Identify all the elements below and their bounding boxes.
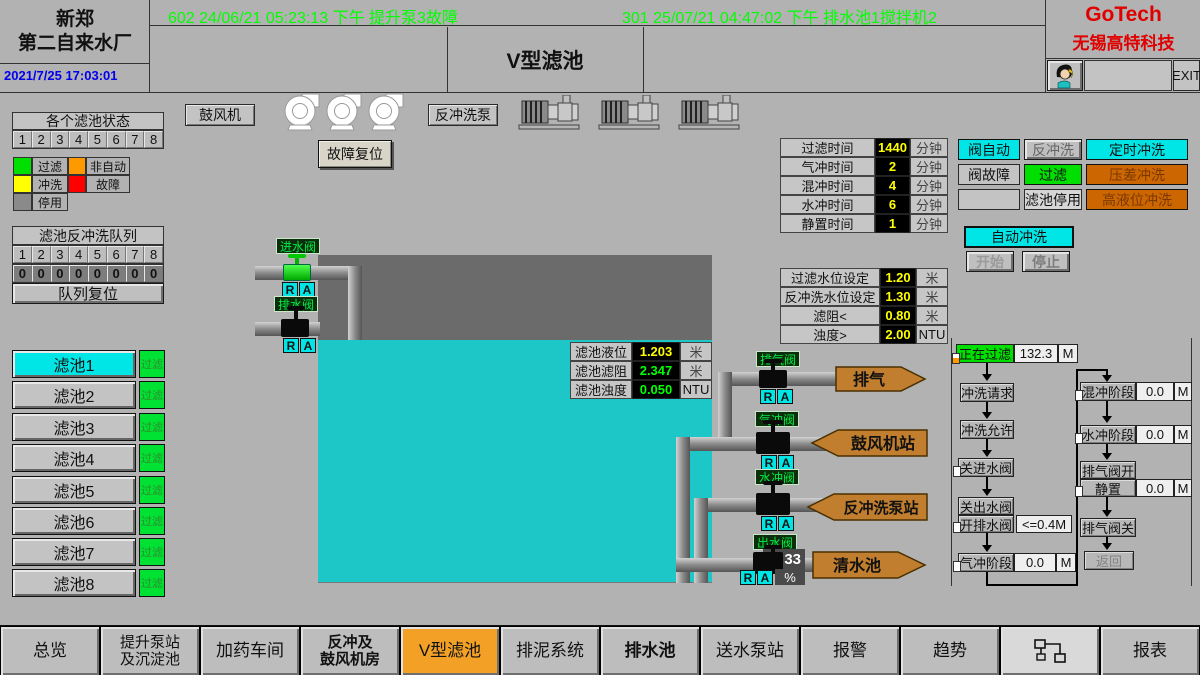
queue-cell-2: 2 bbox=[32, 246, 51, 263]
setting-unit: 米 bbox=[916, 268, 948, 287]
nav-alarm[interactable]: 报警 bbox=[800, 626, 900, 675]
filter-button-6[interactable]: 滤池6 bbox=[12, 507, 136, 535]
setting-value[interactable]: 2.00 bbox=[880, 325, 916, 344]
svg-text:反冲洗泵站: 反冲洗泵站 bbox=[843, 499, 918, 517]
pump-icon bbox=[678, 95, 740, 131]
nav-supply-pump-station[interactable]: 送水泵站 bbox=[700, 626, 800, 675]
flow-mix-stage: 混冲阶段 bbox=[1080, 382, 1136, 401]
legend-swatch-disabled bbox=[13, 193, 32, 211]
flow-air-stage-unit: M bbox=[1056, 553, 1076, 572]
flow-mix-stage-unit: M bbox=[1174, 382, 1192, 401]
filter-status-1: 过滤 bbox=[139, 350, 165, 378]
queue-value-4: 0 bbox=[69, 265, 88, 282]
tank-turbidity-value: 0.050 bbox=[632, 380, 680, 399]
flow-rest-value: 0.0 bbox=[1136, 479, 1174, 497]
flow-panel-border bbox=[1191, 338, 1192, 586]
timer-label: 气冲时间 bbox=[780, 157, 875, 176]
nav-drain-pool[interactable]: 排水池 bbox=[600, 626, 700, 675]
filter-button-3[interactable]: 滤池3 bbox=[12, 413, 136, 441]
tank-level-unit: 米 bbox=[680, 342, 712, 361]
svg-text:鼓风机站: 鼓风机站 bbox=[851, 434, 915, 453]
flow-open-drain: 开排水阀 bbox=[958, 515, 1014, 533]
filter-tank-top bbox=[318, 255, 712, 340]
tank-level-value: 1.203 bbox=[632, 342, 680, 361]
mode-high-level-wash[interactable]: 高液位冲洗 bbox=[1086, 189, 1188, 210]
backwash-pump-button[interactable]: 反冲洗泵 bbox=[428, 104, 498, 126]
nav-overview[interactable]: 总览 bbox=[0, 626, 100, 675]
filter-status-cells: 1 2 3 4 5 6 7 8 bbox=[12, 130, 164, 149]
drain-valve-remote[interactable]: R bbox=[283, 338, 299, 353]
setting-unit: 米 bbox=[916, 306, 948, 325]
status-cell-4[interactable]: 4 bbox=[69, 131, 88, 148]
timer-unit: 分钟 bbox=[910, 214, 948, 233]
flow-air-stage-value: 0.0 bbox=[1014, 553, 1056, 572]
queue-cell-3: 3 bbox=[51, 246, 70, 263]
setting-value[interactable]: 1.20 bbox=[880, 268, 916, 287]
outlet-valve-remote[interactable]: R bbox=[740, 570, 756, 585]
alarm-message-1: 602 24/06/21 05:23:13 下午 提升泵3故障 bbox=[168, 4, 458, 26]
status-cell-3[interactable]: 3 bbox=[51, 131, 70, 148]
timer-unit: 分钟 bbox=[910, 195, 948, 214]
outlet-valve-opening-unit: % bbox=[775, 569, 805, 585]
header-bottom-line bbox=[0, 92, 1200, 93]
nav-dosing-workshop[interactable]: 加药车间 bbox=[200, 626, 300, 675]
fault-reset-button[interactable]: 故障复位 bbox=[318, 140, 392, 168]
timer-label: 水冲时间 bbox=[780, 195, 875, 214]
setting-label: 反冲洗水位设定 bbox=[780, 287, 880, 306]
status-cell-8[interactable]: 8 bbox=[144, 131, 163, 148]
setting-label: 过滤水位设定 bbox=[780, 268, 880, 287]
mode-filtering: 过滤 bbox=[1024, 164, 1082, 185]
filter-status-5: 过滤 bbox=[139, 476, 165, 504]
blower-icon bbox=[325, 93, 363, 131]
flow-water-stage-unit: M bbox=[1174, 425, 1192, 444]
flow-rest: 静置 bbox=[1080, 479, 1136, 497]
divider bbox=[643, 27, 644, 92]
plant-name-line1: 新郑 bbox=[56, 8, 94, 32]
user-icon bbox=[1054, 63, 1076, 89]
plant-name: 新郑 第二自来水厂 bbox=[0, 2, 150, 62]
legend-swatch-manual bbox=[68, 157, 86, 175]
flow-close-outlet: 关出水阀 bbox=[958, 497, 1014, 515]
mode-diff-pressure-wash[interactable]: 压差冲洗 bbox=[1086, 164, 1188, 185]
auto-wash-stop-button[interactable]: 停止 bbox=[1022, 251, 1070, 272]
flow-exhaust-close: 排气阀关 bbox=[1080, 518, 1136, 537]
setting-value[interactable]: 1.30 bbox=[880, 287, 916, 306]
flow-rest-indicator bbox=[1075, 486, 1083, 497]
brand-company-name: 无锡高特科技 bbox=[1046, 28, 1200, 54]
flow-air-stage: 气冲阶段 bbox=[958, 553, 1014, 572]
blower-icon bbox=[367, 93, 405, 131]
timer-value[interactable]: 4 bbox=[875, 176, 910, 195]
filter-button-5[interactable]: 滤池5 bbox=[12, 476, 136, 504]
filter-status-8: 过滤 bbox=[139, 569, 165, 597]
blower-button[interactable]: 鼓风机 bbox=[185, 104, 255, 126]
flow-close-inlet-indicator bbox=[953, 466, 961, 477]
queue-value-3: 0 bbox=[51, 265, 70, 282]
legend-label-disabled: 停用 bbox=[32, 193, 68, 211]
filter-button-7[interactable]: 滤池7 bbox=[12, 538, 136, 566]
flow-air-stage-indicator bbox=[953, 561, 961, 572]
queue-panel-title: 滤池反冲洗队列 bbox=[12, 226, 164, 245]
setting-label: 浊度> bbox=[780, 325, 880, 344]
nav-network-button[interactable] bbox=[1000, 626, 1100, 675]
air-valve-label: 气冲阀 bbox=[755, 411, 799, 427]
backwash-station-arrow: 反冲洗泵站 bbox=[806, 491, 928, 523]
nav-trend[interactable]: 趋势 bbox=[900, 626, 1000, 675]
exhaust-arrow: 排气 bbox=[835, 364, 927, 394]
page-title: V型滤池 bbox=[447, 27, 643, 92]
blower-station-arrow: 鼓风机站 bbox=[810, 427, 928, 459]
filter-status-7: 过滤 bbox=[139, 538, 165, 566]
status-cell-6[interactable]: 6 bbox=[107, 131, 126, 148]
queue-value-7: 0 bbox=[126, 265, 145, 282]
nav-sludge-system[interactable]: 排泥系统 bbox=[500, 626, 600, 675]
status-cell-1[interactable]: 1 bbox=[13, 131, 32, 148]
filter-button-2[interactable]: 滤池2 bbox=[12, 381, 136, 409]
flow-close-inlet: 关进水阀 bbox=[958, 458, 1014, 477]
user-button[interactable] bbox=[1047, 60, 1083, 91]
brand-logo-text: GoTech bbox=[1046, 2, 1200, 28]
mode-filter-disabled[interactable]: 滤池停用 bbox=[1024, 189, 1082, 210]
flow-filtering-indicator bbox=[952, 353, 960, 364]
filter-status-6: 过滤 bbox=[139, 507, 165, 535]
mode-backwash: 反冲洗 bbox=[1024, 139, 1082, 160]
clear-well-arrow: 清水池 bbox=[812, 549, 927, 581]
legend-swatch-fault bbox=[68, 175, 86, 193]
water-valve-auto[interactable]: A bbox=[778, 516, 794, 531]
timer-label: 静置时间 bbox=[780, 214, 875, 233]
queue-cell-5: 5 bbox=[88, 246, 107, 263]
legend-label-washing: 冲洗 bbox=[32, 175, 68, 193]
mode-timed-wash[interactable]: 定时冲洗 bbox=[1086, 139, 1188, 160]
flow-water-stage-indicator bbox=[1075, 433, 1083, 444]
inlet-pipe-elbow bbox=[348, 266, 362, 340]
scada-vfilter-screen: 新郑 第二自来水厂 2021/7/25 17:03:01 602 24/06/2… bbox=[0, 0, 1200, 675]
water-valve-remote[interactable]: R bbox=[761, 516, 777, 531]
queue-cell-7: 7 bbox=[126, 246, 145, 263]
flow-mix-stage-indicator bbox=[1075, 390, 1083, 401]
timer-unit: 分钟 bbox=[910, 138, 948, 157]
nav-report[interactable]: 报表 bbox=[1100, 626, 1200, 675]
tank-level-label: 滤池液位 bbox=[570, 342, 632, 361]
outlet-valve-auto[interactable]: A bbox=[757, 570, 773, 585]
filter-button-8[interactable]: 滤池8 bbox=[12, 569, 136, 597]
divider bbox=[0, 63, 150, 64]
timer-unit: 分钟 bbox=[910, 157, 948, 176]
inlet-valve-label: 进水阀 bbox=[276, 238, 320, 254]
status-cell-7[interactable]: 7 bbox=[126, 131, 145, 148]
filter-button-4[interactable]: 滤池4 bbox=[12, 444, 136, 472]
setting-label: 滤阻< bbox=[780, 306, 880, 325]
bottom-nav: 总览 提升泵站及沉淀池 加药车间 反冲及鼓风机房 V型滤池 排泥系统 排水池 送… bbox=[0, 625, 1200, 675]
flow-mix-stage-value: 0.0 bbox=[1136, 382, 1174, 401]
queue-cell-1: 1 bbox=[13, 246, 32, 263]
nav-backwash-blower-room[interactable]: 反冲及鼓风机房 bbox=[300, 626, 400, 675]
legend-label-fault: 故障 bbox=[86, 175, 130, 193]
tank-turbidity-unit: NTU bbox=[680, 380, 712, 399]
svg-text:清水池: 清水池 bbox=[833, 556, 881, 575]
flow-exhaust-open: 排气阀开 bbox=[1080, 461, 1136, 479]
flow-filtering-unit: M bbox=[1058, 344, 1078, 363]
legend-swatch-filtering bbox=[13, 157, 32, 175]
blower-icon bbox=[283, 93, 321, 131]
brand-box: GoTech 无锡高特科技 EXIT bbox=[1045, 0, 1200, 92]
timer-value[interactable]: 1440 bbox=[875, 138, 910, 157]
pump-icon bbox=[598, 95, 660, 131]
setting-unit: NTU bbox=[916, 325, 948, 344]
exhaust-valve-remote[interactable]: R bbox=[760, 389, 776, 404]
queue-number-row: 1 2 3 4 5 6 7 8 bbox=[12, 245, 164, 264]
exhaust-valve-auto[interactable]: A bbox=[777, 389, 793, 404]
header-spacer-box bbox=[1084, 60, 1172, 91]
nav-v-filter[interactable]: V型滤池 bbox=[400, 626, 500, 675]
drain-valve-auto[interactable]: A bbox=[300, 338, 316, 353]
filter-status-panel-title: 各个滤池状态 bbox=[12, 112, 164, 130]
queue-value-1: 0 bbox=[13, 265, 32, 282]
svg-text:排气: 排气 bbox=[853, 370, 885, 389]
queue-cell-6: 6 bbox=[107, 246, 126, 263]
timer-unit: 分钟 bbox=[910, 176, 948, 195]
filter-status-4: 过滤 bbox=[139, 444, 165, 472]
flow-water-stage-value: 0.0 bbox=[1136, 425, 1174, 444]
divider bbox=[1046, 58, 1200, 59]
auto-wash-title: 自动冲洗 bbox=[964, 226, 1074, 248]
timer-label: 过滤时间 bbox=[780, 138, 875, 157]
tank-resistance-value: 2.347 bbox=[632, 361, 680, 380]
plant-box: 新郑 第二自来水厂 2021/7/25 17:03:01 bbox=[0, 0, 150, 92]
filter-status-2: 过滤 bbox=[139, 381, 165, 409]
title-band: V型滤池 bbox=[150, 27, 1045, 92]
flow-drain-condition: <=0.4M bbox=[1016, 515, 1072, 533]
tank-turbidity-label: 滤池浊度 bbox=[570, 380, 632, 399]
filter-button-1[interactable]: 滤池1 bbox=[12, 350, 136, 378]
flow-rest-unit: M bbox=[1174, 479, 1192, 497]
legend-label-filtering: 过滤 bbox=[32, 157, 68, 175]
flow-open-drain-indicator bbox=[953, 522, 961, 533]
legend-label-manual: 非自动 bbox=[86, 157, 130, 175]
flow-return-button[interactable]: 返回 bbox=[1084, 551, 1134, 570]
flow-water-stage: 水冲阶段 bbox=[1080, 425, 1136, 444]
plant-name-line2: 第二自来水厂 bbox=[18, 32, 132, 56]
queue-value-2: 0 bbox=[32, 265, 51, 282]
queue-cell-4: 4 bbox=[69, 246, 88, 263]
pump-icon bbox=[518, 95, 580, 131]
alarm-bar: 602 24/06/21 05:23:13 下午 提升泵3故障 301 25/0… bbox=[150, 0, 1045, 26]
flow-wash-allow: 冲洗允许 bbox=[960, 420, 1014, 439]
legend-swatch-washing bbox=[13, 175, 32, 193]
queue-value-5: 0 bbox=[88, 265, 107, 282]
filter-status-3: 过滤 bbox=[139, 413, 165, 441]
queue-value-8: 0 bbox=[144, 265, 163, 282]
queue-value-6: 0 bbox=[107, 265, 126, 282]
flow-filtering-value: 132.3 bbox=[1014, 344, 1058, 363]
timer-value[interactable]: 6 bbox=[875, 195, 910, 214]
flow-wash-request: 冲洗请求 bbox=[960, 383, 1014, 402]
mode-empty-cell bbox=[958, 189, 1020, 210]
nav-lift-pump-sedimentation[interactable]: 提升泵站及沉淀池 bbox=[100, 626, 200, 675]
tank-resistance-unit: 米 bbox=[680, 361, 712, 380]
flow-panel-border bbox=[951, 338, 952, 586]
status-cell-2[interactable]: 2 bbox=[32, 131, 51, 148]
datetime: 2021/7/25 17:03:01 bbox=[4, 68, 148, 88]
timer-value[interactable]: 2 bbox=[875, 157, 910, 176]
queue-reset-button[interactable]: 队列复位 bbox=[12, 283, 164, 304]
mode-valve-fault: 阀故障 bbox=[958, 164, 1020, 185]
timer-label: 混冲时间 bbox=[780, 176, 875, 195]
tank-resistance-label: 滤池滤阻 bbox=[570, 361, 632, 380]
network-topology-icon bbox=[1033, 638, 1067, 664]
queue-value-row: 0 0 0 0 0 0 0 0 bbox=[12, 264, 164, 283]
timer-value[interactable]: 1 bbox=[875, 214, 910, 233]
setting-value[interactable]: 0.80 bbox=[880, 306, 916, 325]
status-cell-5[interactable]: 5 bbox=[88, 131, 107, 148]
mode-valve-auto: 阀自动 bbox=[958, 139, 1020, 160]
setting-unit: 米 bbox=[916, 287, 948, 306]
exit-button[interactable]: EXIT bbox=[1173, 60, 1200, 91]
flow-filtering-box: 正在过滤 bbox=[956, 344, 1014, 363]
queue-cell-8: 8 bbox=[144, 246, 163, 263]
alarm-message-2: 301 25/07/21 04:47:02 下午 排水池1搅拌机2 bbox=[622, 4, 937, 26]
auto-wash-start-button[interactable]: 开始 bbox=[966, 251, 1014, 272]
